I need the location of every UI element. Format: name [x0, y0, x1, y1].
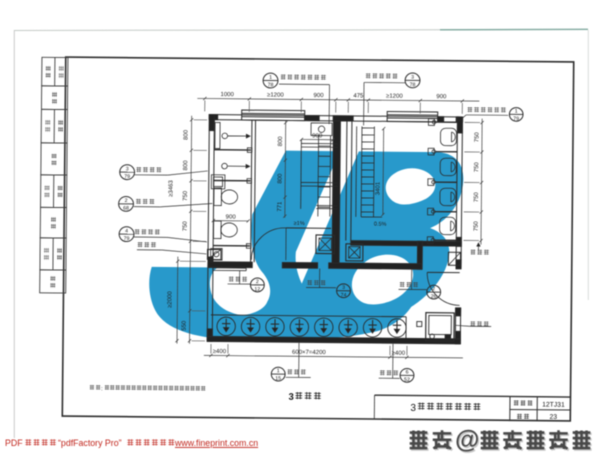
- svg-text:1: 1: [515, 109, 518, 115]
- svg-text:3: 3: [410, 403, 416, 414]
- svg-text:771: 771: [277, 201, 283, 212]
- svg-text:3: 3: [342, 285, 345, 291]
- svg-text:600×7=4200: 600×7=4200: [292, 350, 326, 356]
- svg-text:79: 79: [124, 174, 130, 180]
- svg-text:74: 74: [341, 293, 347, 299]
- svg-text:12: 12: [254, 287, 260, 293]
- svg-text:www.fineprint.com.cn: www.fineprint.com.cn: [174, 438, 258, 448]
- svg-text:“pdfFactory Pro”: “pdfFactory Pro”: [58, 438, 122, 448]
- svg-text:0.5%: 0.5%: [374, 222, 387, 228]
- svg-text:PDF: PDF: [5, 438, 23, 448]
- svg-text:≥1200: ≥1200: [386, 94, 403, 100]
- svg-text:12TJ31: 12TJ31: [542, 402, 565, 409]
- svg-text:750: 750: [474, 162, 480, 173]
- svg-text:3: 3: [126, 166, 129, 172]
- svg-text:≥3463: ≥3463: [168, 180, 174, 197]
- svg-text:475: 475: [353, 93, 364, 99]
- svg-text:1: 1: [269, 75, 272, 81]
- svg-text:1000: 1000: [220, 92, 234, 98]
- svg-text:800: 800: [183, 160, 189, 171]
- svg-text:750: 750: [474, 192, 480, 203]
- svg-text:750: 750: [183, 190, 189, 201]
- svg-text:78: 78: [268, 82, 274, 88]
- svg-text:1: 1: [277, 368, 280, 374]
- svg-text:2: 2: [256, 279, 259, 285]
- svg-text:800: 800: [278, 173, 284, 184]
- svg-text:≥400: ≥400: [213, 349, 227, 355]
- svg-text:3401: 3401: [375, 181, 381, 195]
- svg-text:68: 68: [123, 206, 129, 212]
- svg-text:900: 900: [314, 93, 325, 99]
- svg-text:26: 26: [431, 294, 437, 300]
- svg-text:2: 2: [125, 198, 128, 204]
- svg-text:2: 2: [432, 286, 435, 292]
- svg-text:79: 79: [513, 116, 519, 122]
- svg-text:≥1200: ≥1200: [267, 93, 284, 99]
- svg-text:≥2000: ≥2000: [167, 291, 173, 308]
- svg-text:800: 800: [278, 136, 284, 147]
- svg-text:800: 800: [183, 129, 189, 140]
- svg-text:4: 4: [125, 228, 128, 234]
- svg-text:15: 15: [275, 376, 281, 382]
- svg-text:3: 3: [411, 75, 414, 81]
- svg-text:3: 3: [288, 392, 293, 403]
- svg-text:≥400: ≥400: [392, 351, 406, 357]
- svg-text:≥1%: ≥1%: [294, 221, 305, 227]
- svg-text:750: 750: [183, 221, 189, 232]
- svg-text:550: 550: [182, 320, 188, 331]
- svg-text:78: 78: [410, 82, 416, 88]
- svg-text:6: 6: [406, 370, 409, 376]
- svg-text:23: 23: [549, 414, 557, 421]
- svg-text:52: 52: [404, 377, 410, 383]
- svg-text:900: 900: [226, 215, 237, 221]
- svg-text:79: 79: [124, 236, 130, 242]
- svg-text:@: @: [455, 426, 479, 454]
- svg-text:750: 750: [474, 221, 480, 232]
- svg-text:900: 900: [312, 133, 323, 139]
- svg-text:750: 750: [474, 132, 480, 143]
- svg-text:900: 900: [436, 94, 447, 100]
